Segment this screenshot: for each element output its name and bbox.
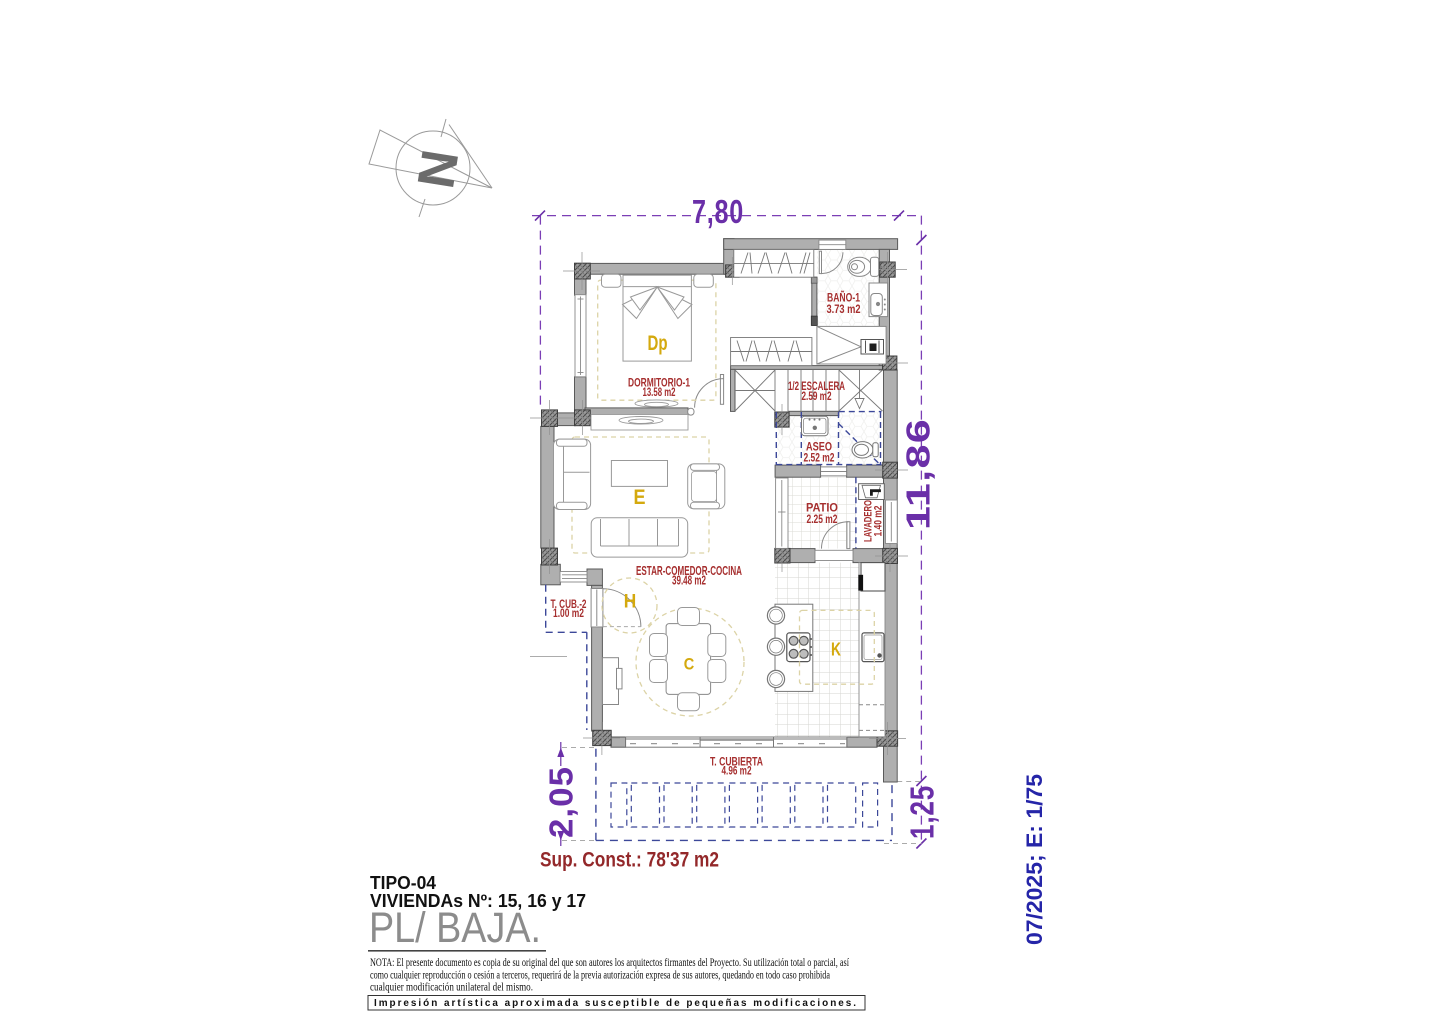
svg-text:PL/ BAJA.: PL/ BAJA. [369, 904, 541, 952]
svg-text:Sup. Const.: 78'37 m2: Sup. Const.: 78'37 m2 [540, 849, 719, 872]
svg-text:NOTA: El presente documento es: NOTA: El presente documento es copia de … [370, 957, 850, 969]
svg-text:PATIO: PATIO [806, 503, 838, 515]
svg-text:11,86: 11,86 [900, 418, 937, 530]
svg-text:2,05: 2,05 [543, 766, 580, 838]
svg-text:2.25 m2: 2.25 m2 [807, 514, 838, 526]
svg-text:Impresión artística aproxima: Impresión artística aproximada susceptib… [374, 998, 858, 1009]
svg-text:13.58 m2: 13.58 m2 [643, 387, 676, 399]
svg-text:H: H [624, 592, 637, 613]
svg-text:K: K [831, 640, 841, 660]
svg-text:3.73 m2: 3.73 m2 [827, 304, 861, 316]
svg-text:E: E [634, 486, 646, 509]
svg-text:4.96 m2: 4.96 m2 [722, 766, 752, 778]
svg-text:Dp: Dp [648, 332, 668, 355]
svg-text:BAÑO-1: BAÑO-1 [827, 292, 860, 305]
svg-text:2.59 m2: 2.59 m2 [802, 391, 832, 403]
svg-text:2.52 m2: 2.52 m2 [804, 453, 835, 465]
svg-text:C: C [684, 655, 695, 674]
svg-text:7,80: 7,80 [692, 193, 744, 230]
svg-text:como cualquier reproducción o: como cualquier reproducción o cesión a t… [370, 970, 830, 982]
svg-text:TIPO-04: TIPO-04 [370, 873, 436, 893]
svg-text:cualquier modificación unilate: cualquier modificación unilateral del mi… [370, 982, 533, 994]
svg-text:1,25: 1,25 [904, 785, 941, 839]
svg-text:39.48 m2: 39.48 m2 [672, 574, 706, 588]
svg-text:1.40 m2: 1.40 m2 [873, 506, 885, 537]
svg-text:07/2025; E: 1/75: 07/2025; E: 1/75 [1022, 774, 1047, 945]
svg-text:1.00 m2: 1.00 m2 [553, 608, 584, 620]
